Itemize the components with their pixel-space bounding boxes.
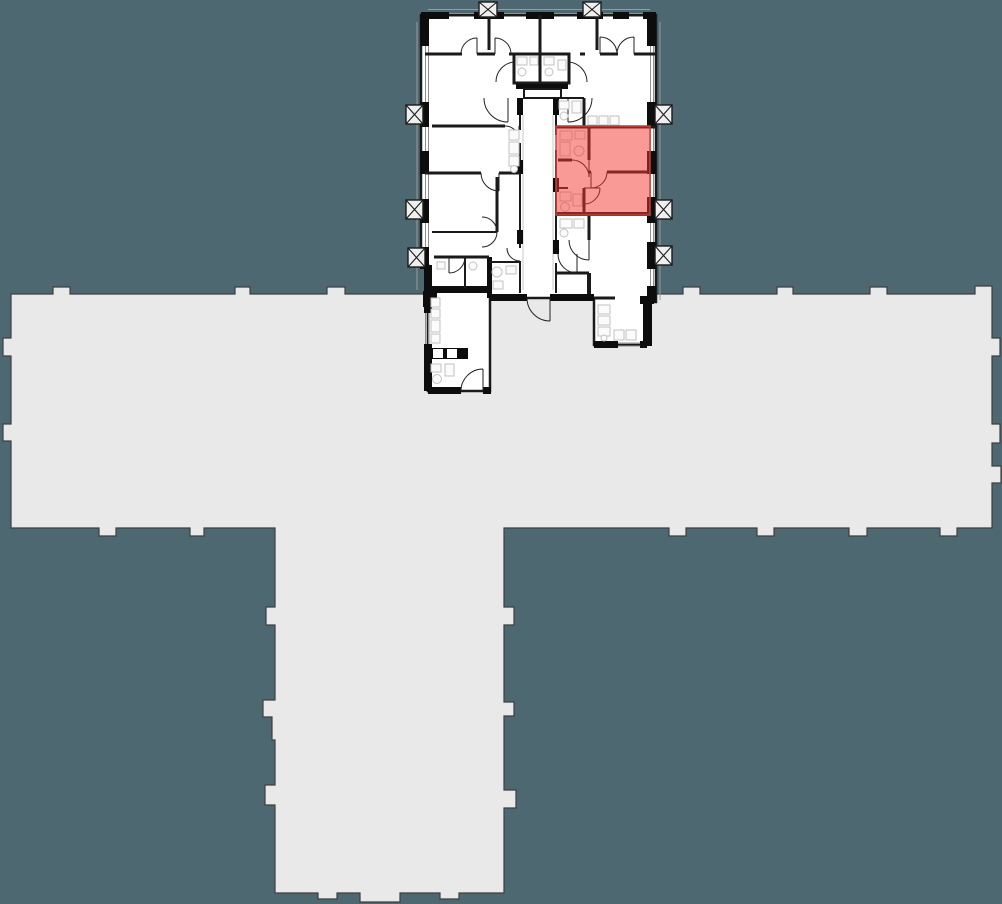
highlighted-apartment[interactable] (556, 126, 650, 215)
floorplan-canvas (0, 0, 1002, 904)
shaft-icon (655, 200, 672, 219)
shaft-icon (408, 248, 425, 267)
shaft-icon (406, 200, 423, 219)
floorplan-stage (0, 0, 1002, 904)
shaft-icon (479, 2, 497, 17)
shaft-icon (406, 105, 423, 124)
building-footprint (3, 286, 1001, 902)
shaft-icon (583, 2, 601, 17)
shaft-icon (655, 246, 672, 265)
shaft-icon (655, 105, 672, 124)
